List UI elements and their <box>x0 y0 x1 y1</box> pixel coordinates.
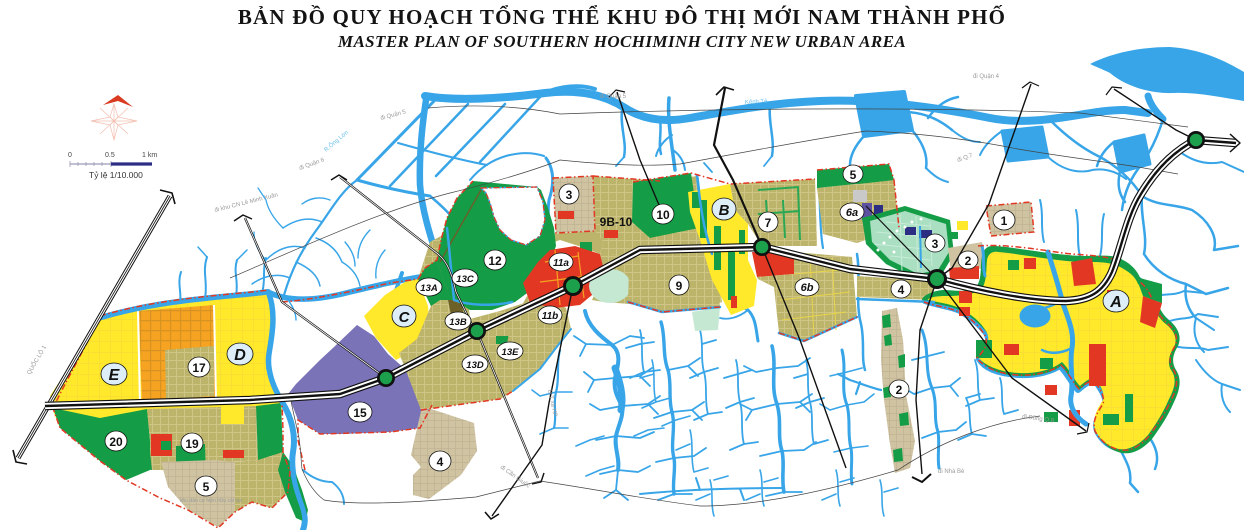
svg-text:11b: 11b <box>542 311 559 322</box>
svg-text:5: 5 <box>850 168 857 182</box>
svg-text:13B: 13B <box>449 317 467 328</box>
svg-text:đi Quận 5: đi Quận 5 <box>380 109 407 122</box>
svg-text:6b: 6b <box>801 282 814 294</box>
svg-text:3: 3 <box>932 237 939 251</box>
svg-text:khu dân cư hiện hữu cải tạo: khu dân cư hiện hữu cải tạo <box>180 498 243 504</box>
svg-text:đi Quận 6: đi Quận 6 <box>299 157 326 172</box>
svg-text:1: 1 <box>1001 214 1008 228</box>
svg-text:B: B <box>719 202 730 219</box>
svg-text:R.Ông Lớn: R.Ông Lớn <box>323 129 350 153</box>
svg-text:11a: 11a <box>553 258 569 269</box>
svg-text:2: 2 <box>896 383 903 397</box>
svg-text:C: C <box>399 309 411 326</box>
svg-text:D: D <box>234 347 246 364</box>
svg-text:13C: 13C <box>456 274 474 285</box>
svg-text:3: 3 <box>566 188 573 202</box>
svg-text:đi Nhà Bè: đi Nhà Bè <box>938 469 965 475</box>
svg-text:6a: 6a <box>846 207 858 219</box>
svg-text:19: 19 <box>185 437 199 451</box>
svg-text:A: A <box>1109 294 1122 311</box>
svg-text:0.5: 0.5 <box>105 152 115 159</box>
svg-text:17: 17 <box>192 361 206 375</box>
svg-text:9: 9 <box>676 279 683 293</box>
svg-text:đi khu CN Lê Minh Xuân: đi khu CN Lê Minh Xuân <box>214 192 279 214</box>
svg-text:5: 5 <box>203 480 210 494</box>
svg-text:đi Quận 5: đi Quận 5 <box>600 94 627 100</box>
svg-text:QUỐC LỘ 1: QUỐC LỘ 1 <box>26 344 49 376</box>
svg-text:đi Quận 4: đi Quận 4 <box>973 74 1000 80</box>
svg-text:E: E <box>109 367 121 384</box>
svg-text:0: 0 <box>68 152 72 159</box>
svg-text:4: 4 <box>898 283 905 297</box>
svg-text:13E: 13E <box>502 347 520 358</box>
svg-text:13D: 13D <box>466 360 484 371</box>
svg-text:15: 15 <box>353 406 367 420</box>
svg-text:2: 2 <box>965 254 972 268</box>
svg-text:12: 12 <box>488 254 502 268</box>
svg-text:13A: 13A <box>420 283 438 294</box>
svg-text:9B-10: 9B-10 <box>600 215 633 229</box>
svg-text:10: 10 <box>656 208 670 222</box>
svg-text:Kênh Tẻ: Kênh Tẻ <box>745 99 769 106</box>
svg-text:1 km: 1 km <box>142 152 157 159</box>
svg-text:7: 7 <box>765 216 772 230</box>
svg-text:đi Q.7: đi Q.7 <box>957 153 975 164</box>
svg-text:20: 20 <box>109 435 123 449</box>
svg-text:4: 4 <box>437 455 444 469</box>
svg-text:Tỷ lệ 1/10.000: Tỷ lệ 1/10.000 <box>89 170 143 180</box>
